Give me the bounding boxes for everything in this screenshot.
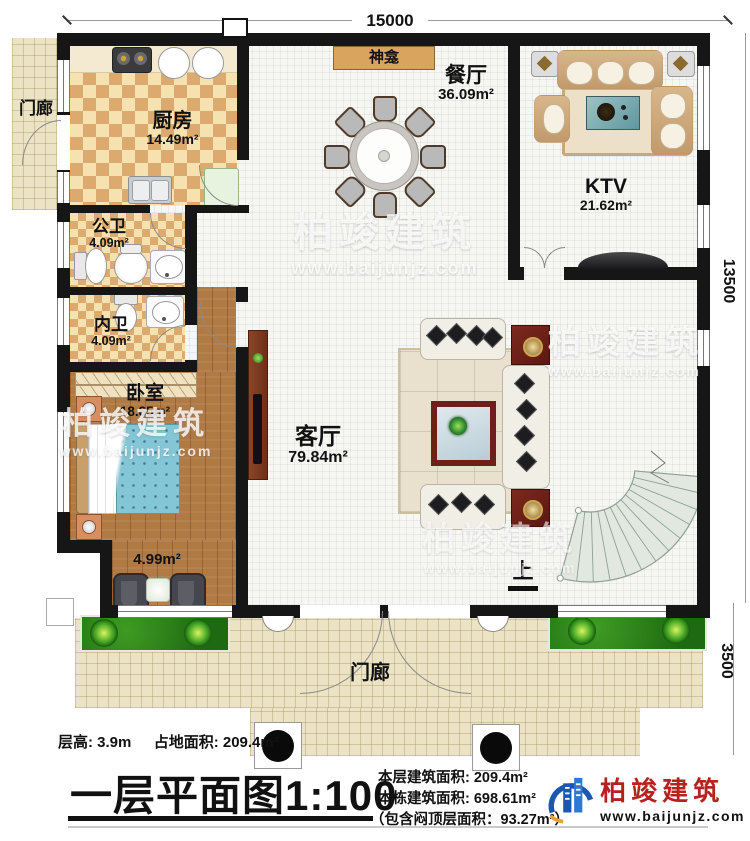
wall-bedroom-right-a [236,287,248,302]
wall-ktv-bottom-a [508,267,524,280]
dim-porch: 3500 [717,635,735,687]
wall-bath-mid [57,287,197,295]
living-end-table-bottom [511,489,550,527]
plant-icon [449,417,467,435]
wall-top [57,33,710,46]
title-underline-thick [68,816,373,821]
wall-bath-right-a [185,213,197,325]
window-bath-public [57,222,70,268]
wall-bedroom-right-b [236,347,248,618]
window-porch-left-2 [57,172,70,203]
wall-kitchen-right [237,33,249,160]
round-sink-1 [158,47,190,79]
footer-areas: 本层建筑面积: 209.4m² 本栋建筑面积: 698.61m² （包含闷顶层面… [378,768,569,831]
wall-bath-right-b [185,360,197,372]
dining-chair [373,192,397,218]
land-area: 占地面积: 209.4m² [154,734,279,751]
stairs-up-mark [508,586,538,591]
dining-chair [373,96,397,122]
balcony-table [146,578,170,602]
ktv-label: KTV 21.62m² [558,175,654,213]
ktv-corner-table-right [667,51,695,77]
dim-top: 15000 [352,11,428,31]
shrine-label: 神龛 [369,50,399,67]
window-ktv-right-1 [697,66,710,150]
nightstand-bottom [76,514,102,540]
ktv-sofa-side [651,86,693,156]
footer-stats-left: 层高: 3.9m 占地面积: 209.4m² [58,731,279,752]
ktv-armchair [534,95,570,143]
bath-private-label: 内卫 4.09m² [80,316,142,348]
floor-height: 层高: 3.9m [58,734,131,751]
brand-building-icon [545,768,594,826]
living-label: 客厅 79.84m² [270,424,366,467]
dim-right: 13500 [719,253,737,309]
nightstand-top [76,396,102,422]
balcony-area-label: 4.99m² [112,552,202,569]
plan-title: 一层平面图1:100 [70,762,397,823]
porch-front-label: 门廊 [330,662,410,684]
brand-url: www.baijunjz.com [600,808,745,824]
porch-column-right [472,724,520,771]
basin-public [150,250,186,284]
basin-private [146,296,184,328]
window-living-right [697,330,710,366]
area-attic: （包含闷顶层面积：93.27m²） [370,810,569,831]
living-sofa-top [420,318,506,360]
dim-line-right [745,33,746,603]
living-sofa-right [502,365,550,489]
dining-label: 餐厅 36.09m² [420,64,512,104]
dining-table-set [320,90,450,222]
planter-left [80,615,230,652]
living-end-table-top [511,325,550,365]
window-stairs [558,605,666,618]
window-porch-left [57,60,70,112]
window-bedroom [57,412,70,512]
side-step-left [46,598,74,626]
bed [76,424,178,512]
plant-small-icon [253,353,263,363]
stairs-up-label: 上 [505,560,541,583]
ktv-coffee-table [586,96,640,130]
bedroom-label: 卧室 18.85m² [105,384,185,420]
bedroom-tv [253,394,262,464]
living-sofa-bottom [420,484,506,530]
floor-plan-canvas: 上 神龛 [0,0,750,841]
dining-chair [420,145,446,169]
brand-logo: 柏竣建筑 www.baijunjz.com [545,768,745,826]
wall-bottom-4 [666,605,710,618]
window-ktv-right-2 [697,205,710,248]
wall-bath-top-b [185,205,249,213]
wall-bath-bottom [57,362,197,372]
window-bath-private [57,298,70,345]
round-sink-2 [192,47,224,79]
porch-front-steps-floor [250,708,640,756]
living-coffee-table [431,401,496,466]
wall-bath-top-a [57,205,150,213]
area-building: 本栋建筑面积: 698.61m² [378,789,569,810]
kitchen-sink [128,176,172,204]
window-balcony [118,605,232,618]
porch-left-label: 门廊 [14,100,58,119]
wall-balcony-left [100,540,112,612]
ktv-corner-table-left [531,51,559,77]
ktv-sofa-main [557,50,663,90]
stove [112,47,152,73]
brand-name: 柏竣建筑 [600,771,745,808]
dining-chair [324,145,350,169]
area-floor: 本层建筑面积: 209.4m² [378,768,569,789]
chimney [222,18,248,38]
bedroom-tv-cabinet [248,330,268,480]
exterior-notch [70,553,102,605]
bath-public-label: 公卫 4.09m² [78,218,140,250]
kitchen-label: 厨房 14.49m² [120,110,225,147]
toilet-public [74,246,106,284]
